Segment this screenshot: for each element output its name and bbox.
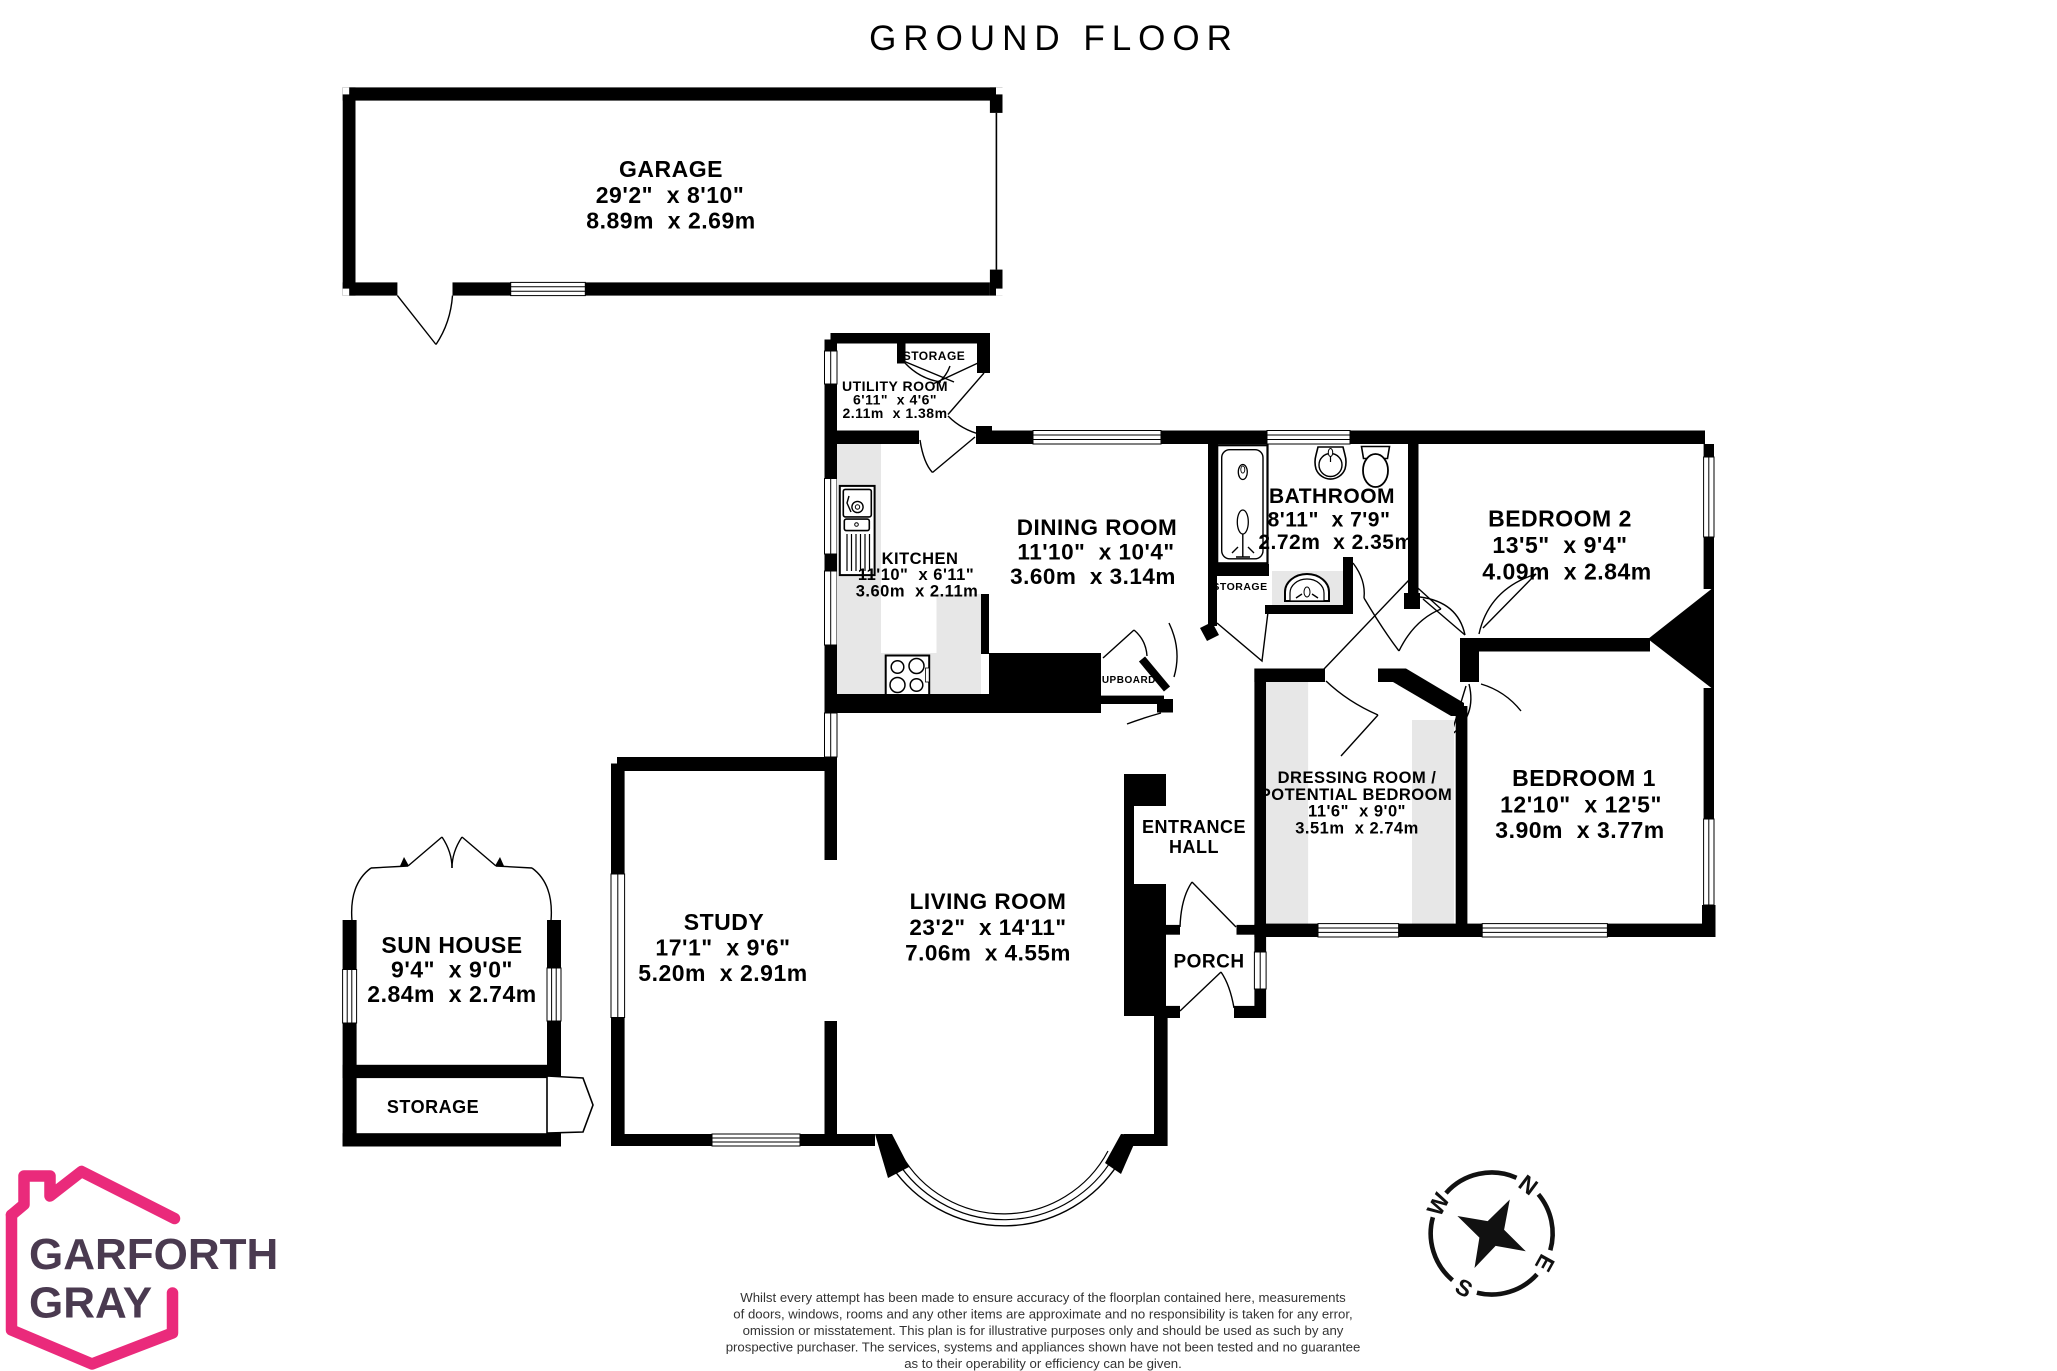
svg-text:PORCH: PORCH (1173, 952, 1244, 973)
svg-text:POTENTIAL BEDROOM: POTENTIAL BEDROOM (1260, 786, 1452, 804)
svg-text:STUDY: STUDY (684, 909, 764, 935)
svg-text:Whilst every attempt has been: Whilst every attempt has been made to en… (740, 1290, 1346, 1305)
svg-text:2.11m x 1.38m: 2.11m x 1.38m (842, 405, 947, 421)
svg-text:3.60m x 3.14m: 3.60m x 3.14m (1010, 564, 1176, 589)
svg-text:BEDROOM 2: BEDROOM 2 (1488, 506, 1632, 532)
svg-text:GARAGE: GARAGE (619, 156, 723, 182)
svg-text:4.09m x 2.84m: 4.09m x 2.84m (1482, 559, 1651, 585)
svg-text:DRESSING ROOM /: DRESSING ROOM / (1278, 769, 1437, 787)
svg-text:BATHROOM: BATHROOM (1269, 485, 1395, 508)
svg-text:13'5" x 9'4": 13'5" x 9'4" (1492, 532, 1627, 558)
svg-text:29'2" x 8'10": 29'2" x 8'10" (596, 182, 744, 208)
svg-text:STORAGE: STORAGE (903, 349, 966, 363)
svg-text:11'10" x 10'4": 11'10" x 10'4" (1017, 540, 1174, 565)
svg-text:23'2" x 14'11": 23'2" x 14'11" (909, 915, 1066, 940)
svg-text:12'10" x 12'5": 12'10" x 12'5" (1500, 791, 1662, 817)
svg-text:3.51m x 2.74m: 3.51m x 2.74m (1295, 819, 1419, 837)
svg-text:2.84m x 2.74m: 2.84m x 2.74m (367, 981, 536, 1007)
svg-text:SUN HOUSE: SUN HOUSE (381, 932, 522, 958)
svg-text:ENTRANCE: ENTRANCE (1142, 817, 1246, 837)
svg-text:STORAGE: STORAGE (387, 1097, 479, 1117)
svg-text:prospective purchaser. The ser: prospective purchaser. The services, sys… (726, 1340, 1361, 1355)
svg-text:3.90m x 3.77m: 3.90m x 3.77m (1495, 817, 1664, 843)
svg-text:CUPBOARD: CUPBOARD (1094, 675, 1156, 686)
svg-text:GROUND FLOOR: GROUND FLOOR (869, 19, 1239, 58)
svg-text:11'10" x 6'11": 11'10" x 6'11" (858, 566, 974, 584)
svg-text:5.20m x 2.91m: 5.20m x 2.91m (638, 960, 807, 986)
svg-text:BEDROOM 1: BEDROOM 1 (1512, 765, 1656, 791)
svg-text:omission or misstatement. This: omission or misstatement. This plan is f… (743, 1323, 1344, 1338)
svg-text:7.06m x 4.55m: 7.06m x 4.55m (905, 941, 1071, 966)
svg-text:3.60m x 2.11m: 3.60m x 2.11m (856, 583, 979, 601)
svg-text:8'11" x 7'9": 8'11" x 7'9" (1268, 509, 1391, 532)
svg-text:11'6" x 9'0": 11'6" x 9'0" (1308, 803, 1406, 821)
svg-text:as to their operability or eff: as to their operability or efficiency ca… (904, 1356, 1182, 1371)
svg-text:DINING ROOM: DINING ROOM (1017, 515, 1178, 540)
svg-text:STORAGE: STORAGE (1212, 581, 1267, 593)
svg-text:2.72m x 2.35m: 2.72m x 2.35m (1258, 531, 1413, 554)
svg-text:9'4" x 9'0": 9'4" x 9'0" (391, 957, 513, 983)
svg-text:17'1" x 9'6": 17'1" x 9'6" (655, 935, 790, 961)
svg-text:GRAY: GRAY (29, 1279, 152, 1328)
svg-text:of doors, windows, rooms and a: of doors, windows, rooms and any other i… (733, 1307, 1352, 1322)
svg-text:LIVING ROOM: LIVING ROOM (910, 889, 1067, 914)
svg-text:8.89m x 2.69m: 8.89m x 2.69m (586, 208, 755, 234)
svg-text:GARFORTH: GARFORTH (29, 1230, 278, 1279)
svg-text:HALL: HALL (1169, 837, 1219, 857)
